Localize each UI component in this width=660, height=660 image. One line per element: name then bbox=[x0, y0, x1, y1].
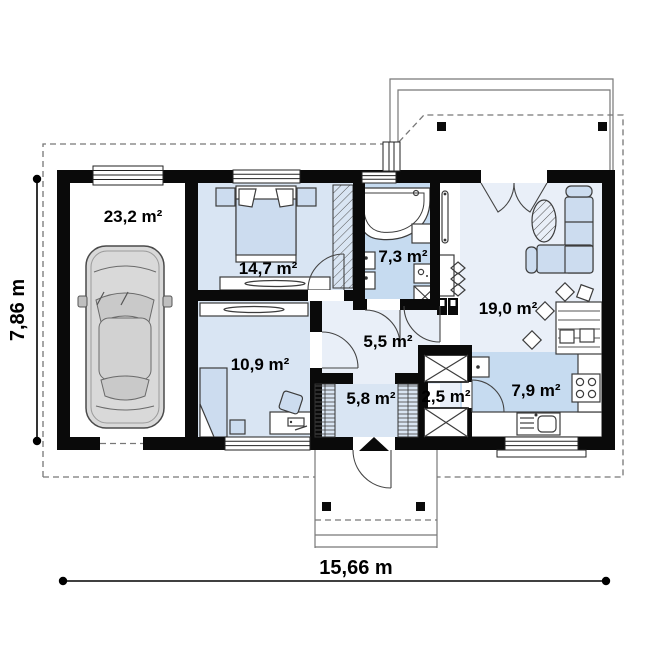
bedroom-window bbox=[233, 170, 300, 183]
front-door bbox=[353, 437, 395, 488]
terrace-post bbox=[598, 122, 607, 131]
tall-radiator bbox=[442, 191, 448, 243]
dimension-height: 7,86 m bbox=[7, 175, 41, 445]
car-mirror bbox=[78, 296, 87, 307]
nightstand bbox=[297, 188, 316, 206]
kitchen-window bbox=[497, 437, 586, 457]
car bbox=[78, 246, 172, 428]
chimney bbox=[383, 142, 400, 171]
dresser bbox=[200, 303, 308, 316]
entry-area-label: 5,8 m² bbox=[346, 389, 395, 408]
width-dimension-label: 15,66 m bbox=[319, 557, 392, 579]
bedroom-area-label: 14,7 m² bbox=[239, 259, 298, 278]
car-rear-window bbox=[101, 376, 149, 400]
porch-post bbox=[416, 502, 425, 511]
dining-table bbox=[556, 302, 602, 354]
utility-area-label: 2,5 m² bbox=[421, 387, 470, 406]
garage-gate bbox=[93, 166, 163, 185]
utility-closet bbox=[424, 408, 468, 437]
utility-closet bbox=[424, 355, 468, 382]
office-area-label: 10,9 m² bbox=[231, 355, 290, 374]
placemat bbox=[580, 329, 594, 342]
floor-plan-canvas: 23,2 m² 14,7 m² 7,3 m² 19,0 m² 10,9 m² 5… bbox=[0, 0, 660, 660]
sink-unit bbox=[517, 413, 560, 435]
dresser bbox=[220, 277, 330, 290]
dimension-width: 15,66 m bbox=[59, 557, 610, 585]
nightstand bbox=[216, 188, 235, 206]
garage-rear-opening bbox=[100, 437, 143, 450]
hallway-area-label: 5,5 m² bbox=[363, 332, 412, 351]
placemat bbox=[560, 330, 574, 343]
wardrobe bbox=[333, 185, 353, 288]
terrace-post bbox=[437, 122, 446, 131]
bathroom-window bbox=[362, 172, 396, 183]
entry-wardrobe bbox=[398, 384, 418, 437]
bathroom-area-label: 7,3 m² bbox=[378, 247, 427, 266]
porch-post bbox=[322, 502, 331, 511]
car-mirror bbox=[163, 296, 172, 307]
kitchen-area-label: 7,9 m² bbox=[511, 381, 560, 400]
plant bbox=[532, 200, 556, 242]
entry-wardrobe bbox=[315, 384, 335, 437]
terrace bbox=[390, 79, 613, 170]
garage-area-label: 23,2 m² bbox=[104, 207, 163, 226]
height-dimension-label: 7,86 m bbox=[7, 279, 29, 341]
entrance-porch bbox=[315, 450, 437, 548]
bed-duvet bbox=[236, 199, 296, 255]
living-room-area-label: 19,0 m² bbox=[479, 299, 538, 318]
office-window bbox=[225, 437, 310, 450]
stool bbox=[230, 420, 245, 434]
car-roof bbox=[99, 318, 151, 380]
cooktop bbox=[572, 374, 600, 402]
